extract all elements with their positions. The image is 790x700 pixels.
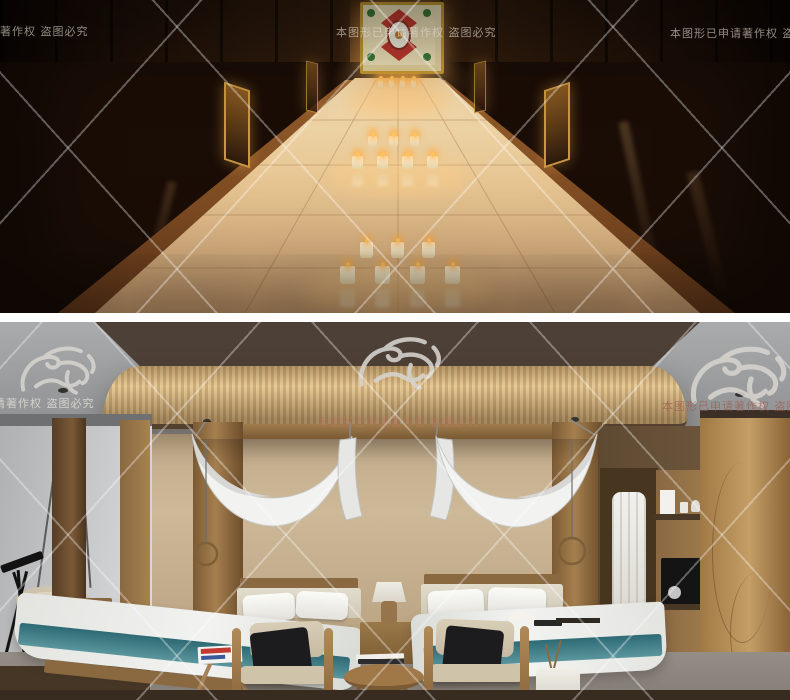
front-platform-edge [0, 690, 790, 700]
bedroom-image[interactable]: 本图形已申请著作权 盗图必究 本图形已申请著作权 盗图必究 本图形已申请著作权 … [0, 322, 790, 700]
watermark-text-bottom-right: 本图形已申请著作权 盗图必究 [662, 398, 790, 414]
round-coffee-table [344, 664, 424, 691]
corridor-image[interactable]: 本图形已申请著作权 盗图必究 本图形已申请著作权 盗图必究 本图形已申请著作权 … [0, 0, 790, 313]
watermark-text-bottom-center: 本图形已申请著作权 盗图必究 [318, 414, 479, 430]
watermark-text-top-center: 本图形已申请著作权 盗图必究 [336, 24, 497, 40]
watermark-text-top-right: 本图形已申请著作权 盗图必究 [670, 25, 790, 41]
right-chair-arm [520, 626, 529, 694]
right-chair-arm [424, 626, 433, 694]
left-chair-arm [324, 628, 333, 694]
books-on-table [356, 654, 406, 666]
dragon-watermark-icon [348, 330, 456, 400]
right-chair-seat [430, 664, 524, 682]
page: 本图形已申请著作权 盗图必究 本图形已申请著作权 盗图必究 本图形已申请著作权 … [0, 0, 790, 700]
left-chair-seat [240, 666, 328, 684]
vignette [0, 0, 790, 313]
watermark-text-bottom-left: 本图形已申请著作权 盗图必究 [0, 395, 95, 411]
image-divider-gap [0, 313, 790, 322]
left-chair-arm [232, 628, 241, 694]
watermark-text-top-left: 本图形已申请著作权 盗图必究 [0, 23, 89, 39]
